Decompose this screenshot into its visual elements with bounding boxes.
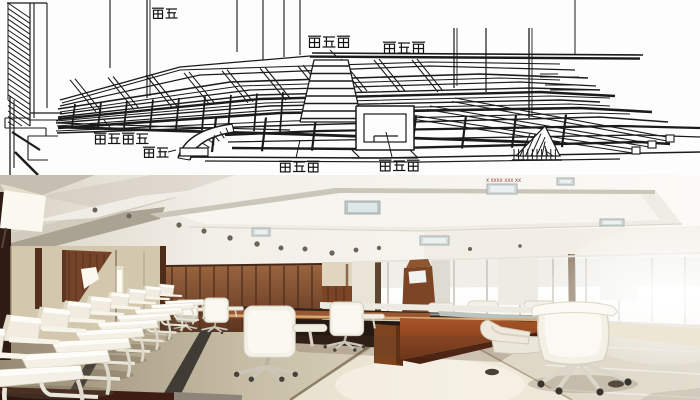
svg-text:x xxxx xxx xx: x xxxx xxx xx xyxy=(486,178,521,184)
